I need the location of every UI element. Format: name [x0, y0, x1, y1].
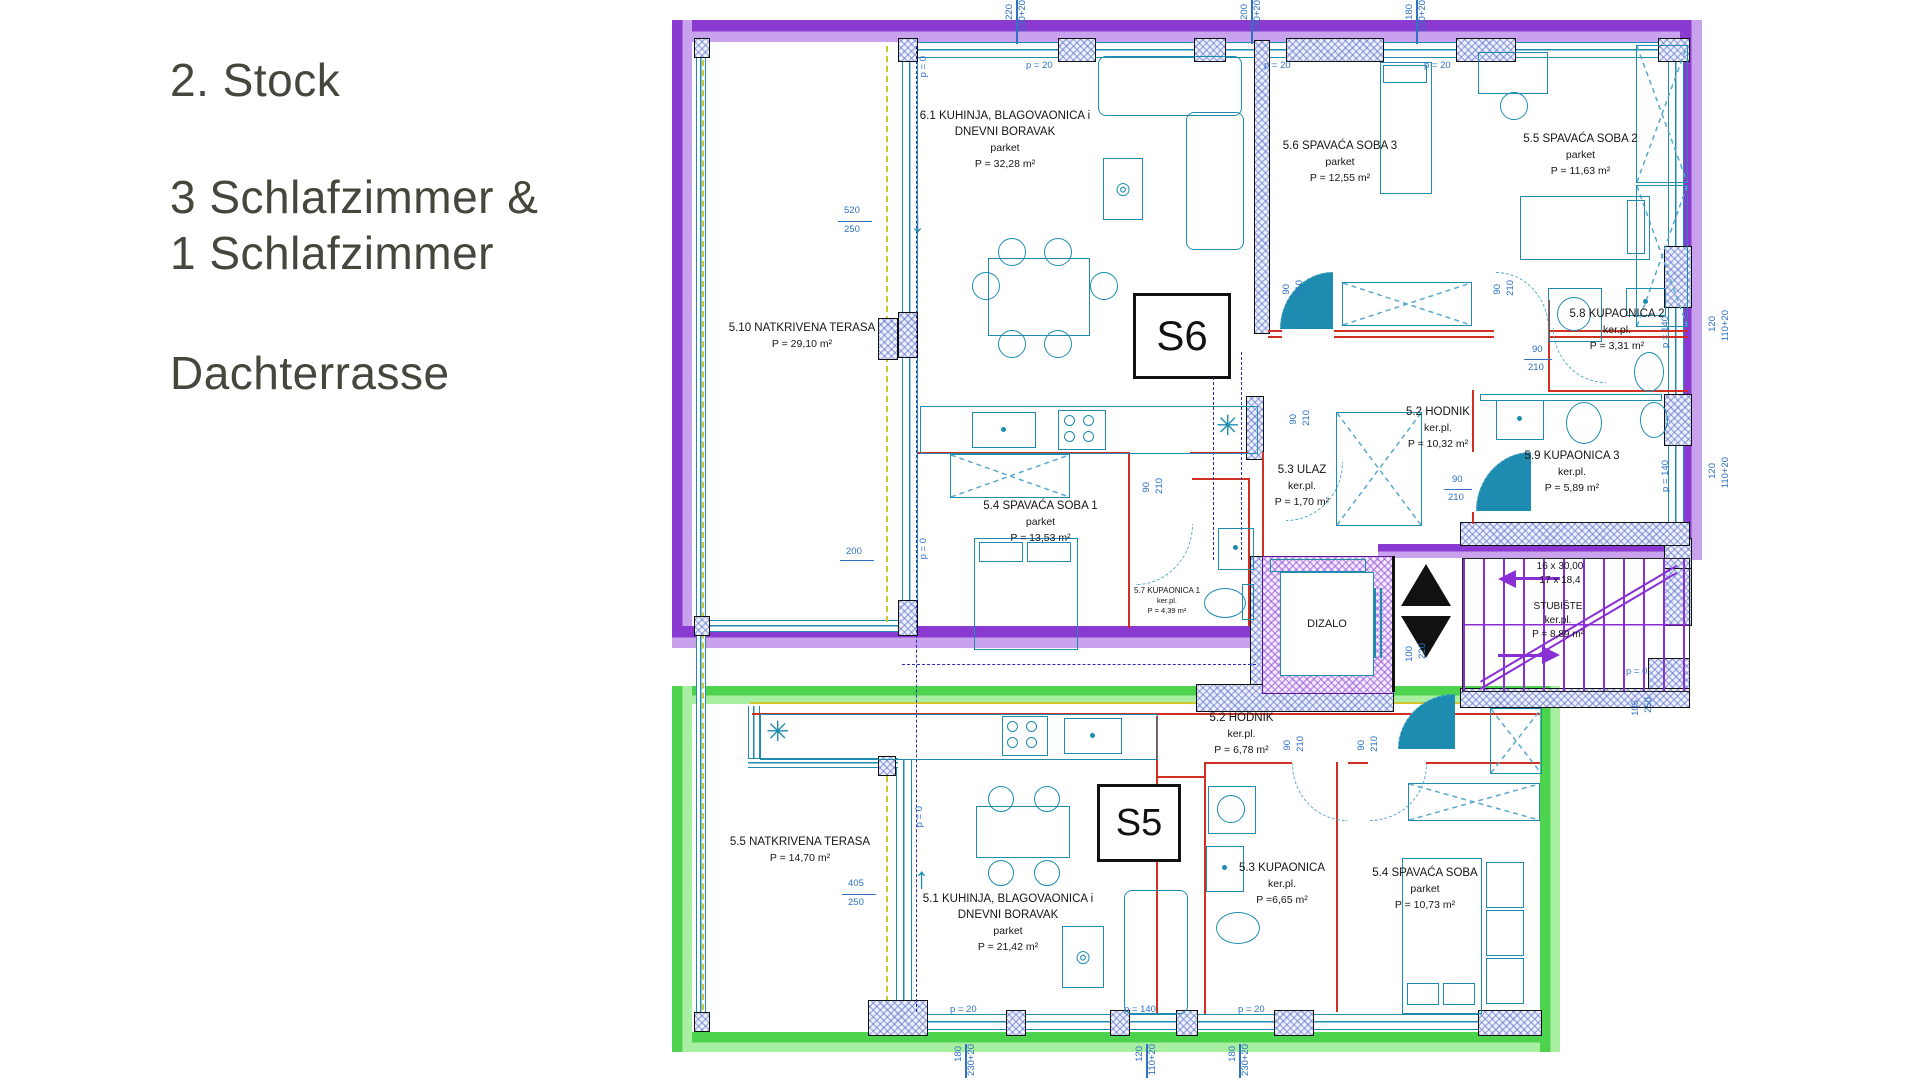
- dim-tick: [1146, 1044, 1148, 1078]
- lobby-wall: [1392, 556, 1395, 692]
- room-finish: ker.pl.: [1228, 876, 1336, 892]
- stove: [1002, 716, 1048, 756]
- caption-line-2: 1 Schlafzimmer: [170, 226, 494, 280]
- room-name: 5.10 NATKRIVENA TERASA: [722, 320, 882, 336]
- chair: [988, 860, 1014, 886]
- dim-label: p = 20: [1026, 60, 1053, 71]
- terrace-edge-bottom-s6: [698, 620, 902, 632]
- core-wall: [1460, 522, 1690, 546]
- unit-label-s5: S5: [1097, 784, 1181, 862]
- room-label-hall-s6: 5.2 HODNIK ker.pl. P = 10,32 m²: [1398, 404, 1478, 452]
- dim-label: 230+20: [1017, 0, 1028, 32]
- red-partition: [1348, 762, 1368, 764]
- dim-label: 90: [1492, 284, 1503, 295]
- elevator-car: DIZALO: [1280, 572, 1374, 676]
- chair: [1044, 238, 1072, 266]
- chair: [988, 786, 1014, 812]
- room-area: P = 10,32 m²: [1398, 436, 1478, 452]
- room-name: 5.2 HODNIK: [1398, 404, 1478, 420]
- floor-title: 2. Stock: [170, 53, 340, 107]
- room-finish: parket: [918, 923, 1098, 939]
- dim-label: 230+20: [1240, 1044, 1251, 1076]
- wall-segment: [898, 312, 918, 358]
- room-name: 5.5 SPAVAĆA SOBA 2: [1498, 131, 1663, 147]
- dim-line: [838, 221, 872, 222]
- room-name: 5.8 KUPAONICA 2: [1558, 306, 1676, 322]
- chair: [1044, 330, 1072, 358]
- wall-segment: [1274, 1010, 1314, 1036]
- dim-tick: [1239, 1044, 1241, 1078]
- dim-label: 90: [1356, 740, 1367, 751]
- bidet: [1640, 402, 1668, 438]
- room-name: 5.4 SPAVAĆA SOBA 1: [973, 498, 1108, 514]
- red-partition: [1268, 336, 1282, 338]
- dim-label: 90: [1288, 414, 1299, 425]
- room-finish: ker.pl.: [1260, 478, 1344, 494]
- dim-label: 210: [1154, 478, 1165, 494]
- washing-machine: [1208, 786, 1256, 834]
- direction-up-icon: [1401, 564, 1451, 606]
- dim-label: 120: [1707, 316, 1718, 332]
- room-finish: parket: [1366, 881, 1484, 897]
- dim-label: 90: [1141, 482, 1152, 493]
- window-band-west-s5: [896, 760, 912, 1016]
- wardrobe: [950, 454, 1070, 498]
- dim-label: 100: [1404, 646, 1415, 662]
- room-name: 5.9 KUPAONICA 3: [1516, 448, 1628, 464]
- room-label-bedroom-s5: 5.4 SPAVAĆA SOBA parket P = 10,73 m²: [1366, 865, 1484, 913]
- dim-tick: [1251, 0, 1253, 44]
- dim-label: 90: [1452, 474, 1463, 485]
- room-finish: ker.pl.: [1398, 420, 1478, 436]
- dim-label: 210: [1295, 736, 1306, 752]
- dim-line: [840, 560, 874, 561]
- wall-segment: [898, 600, 918, 636]
- dim-label: 120: [1707, 463, 1718, 479]
- red-partition: [1192, 478, 1248, 480]
- dim-label: p = 0: [1626, 666, 1647, 677]
- room-label-bedroom1: 5.4 SPAVAĆA SOBA 1 parket P = 13,53 m²: [973, 498, 1108, 546]
- elevator-door: [1380, 588, 1382, 658]
- dim-label: 210: [1505, 280, 1516, 296]
- interior-wall: [1254, 40, 1270, 334]
- s5-frame-left: [672, 686, 692, 1052]
- room-area: P =6,65 m²: [1228, 892, 1336, 908]
- dim-label: p = 140: [1124, 1004, 1156, 1015]
- room-area: P = 11,63 m²: [1498, 163, 1663, 179]
- stove: [1058, 410, 1106, 450]
- axis-line: [1213, 352, 1214, 560]
- room-area: P = 21,42 m²: [918, 939, 1098, 955]
- dim-label: 110+20: [1720, 457, 1731, 488]
- dim-label: 180: [953, 1046, 964, 1062]
- dim-label: 210: [1448, 492, 1464, 503]
- room-name: 5.6 SPAVAĆA SOBA 3: [1266, 138, 1414, 154]
- room-name: 5.5 NATKRIVENA TERASA: [720, 834, 880, 850]
- dining-table: [976, 806, 1070, 858]
- toilet: [1216, 912, 1260, 944]
- dining-table: [988, 258, 1090, 336]
- room-name: 6.1 KUHINJA, BLAGOVAONICA i: [880, 108, 1130, 124]
- room-name: 5.7 KUPAONICA 1: [1126, 586, 1208, 596]
- toilet: [1204, 588, 1246, 618]
- room-area: P = 3,31 m²: [1558, 338, 1676, 354]
- terrace-post: [694, 616, 710, 636]
- toilet: [1566, 402, 1602, 444]
- caption-line-3: Dachterrasse: [170, 346, 450, 400]
- s6-frame-top: [672, 20, 1702, 42]
- room-name: 5.3 KUPAONICA: [1228, 860, 1336, 876]
- room-area: P = 4,39 m²: [1126, 606, 1208, 616]
- caption-line-1: 3 Schlafzimmer &: [170, 170, 538, 224]
- stair-name: STUBIŠTE: [1502, 600, 1614, 614]
- room-finish: parket: [880, 140, 1130, 156]
- wall-segment: [1286, 38, 1384, 62]
- dim-label: 230+20: [1252, 0, 1263, 32]
- kitchen-sink: [972, 412, 1036, 448]
- room-area: P = 1,70 m²: [1260, 494, 1344, 510]
- kitchen-sink: [1064, 718, 1122, 754]
- red-partition: [1268, 330, 1282, 332]
- dim-label: 405: [848, 878, 864, 889]
- dim-label: p = 0: [918, 56, 929, 77]
- wall-segment: [898, 38, 918, 62]
- nightstand: [1486, 910, 1524, 956]
- dim-line: [1444, 489, 1472, 490]
- room-label-hall-s5: 5.2 HODNIK ker.pl. P = 6,78 m²: [1194, 710, 1289, 758]
- room-name: DNEVNI BORAVAK: [880, 124, 1130, 140]
- dim-label: p = 20: [1238, 1004, 1265, 1015]
- terrace-dashed-line: [702, 40, 704, 1030]
- dim-label: 105: [1630, 700, 1641, 716]
- room-name: 5.4 SPAVAĆA SOBA: [1366, 865, 1484, 881]
- dim-label: 90: [1281, 284, 1292, 295]
- bathroom-sink: [1218, 528, 1254, 570]
- room-label-bath2: 5.8 KUPAONICA 2 ker.pl. P = 3,31 m²: [1558, 306, 1676, 354]
- room-area: P = 12,55 m²: [1266, 170, 1414, 186]
- dim-label: 250: [844, 224, 860, 235]
- room-area: P = 6,78 m²: [1194, 742, 1289, 758]
- balcony-dashed-line: [902, 664, 1256, 665]
- room-label-terrace-s6: 5.10 NATKRIVENA TERASA P = 29,10 m²: [722, 320, 882, 352]
- chair: [1090, 272, 1118, 300]
- s6-frame-left: [672, 20, 692, 648]
- elevator-machinery: [1270, 559, 1366, 572]
- room-area: P = 32,28 m²: [880, 156, 1130, 172]
- dim-label: p = 140: [1660, 316, 1671, 348]
- dim-label: 180: [1227, 1046, 1238, 1062]
- dim-label: 230+20: [966, 1044, 977, 1076]
- room-finish: parket: [1498, 147, 1663, 163]
- room-finish: ker.pl.: [1558, 322, 1676, 338]
- room-area: P = 5,89 m²: [1516, 480, 1628, 496]
- stair-arrow-line: [1498, 654, 1542, 657]
- wardrobe: [1342, 282, 1472, 326]
- dim-label: 210: [1528, 362, 1544, 373]
- dim-tick: [1416, 0, 1418, 44]
- dim-label: p = 0: [918, 538, 929, 559]
- room-label-bath-s5: 5.3 KUPAONICA ker.pl. P =6,65 m²: [1228, 860, 1336, 908]
- door-swing: [1292, 764, 1347, 821]
- room-area: P = 13,53 m²: [973, 530, 1108, 546]
- dim-label: 90: [1532, 344, 1543, 355]
- sofa: [1124, 890, 1188, 1014]
- dim-label: 120: [1134, 1046, 1145, 1062]
- dim-label: 200: [846, 546, 862, 557]
- wardrobe: [1408, 783, 1540, 821]
- unit-label-s6: S6: [1133, 293, 1231, 379]
- elevator-door: [1374, 588, 1376, 658]
- wardrobe: [1490, 708, 1542, 774]
- dim-tick: [965, 1044, 967, 1078]
- sofa: [1186, 112, 1244, 250]
- wall-segment: [1478, 1010, 1542, 1036]
- dim-line: [842, 894, 876, 895]
- dim-label: p = 20: [950, 1004, 977, 1015]
- dim-label: 220: [1004, 4, 1015, 20]
- dim-tick: [1016, 0, 1018, 44]
- stair-arrow-icon: [1542, 646, 1560, 664]
- desk: [1478, 52, 1548, 94]
- red-partition: [1472, 512, 1474, 524]
- room-area: P = 10,73 m²: [1366, 897, 1484, 913]
- dim-label: p = 20: [1424, 60, 1451, 71]
- terrace-post: [694, 38, 710, 58]
- dim-label: 210: [1301, 410, 1312, 426]
- room-name: 5.1 KUHINJA, BLAGOVAONICA i: [918, 891, 1098, 907]
- chair: [972, 272, 1000, 300]
- arrow-up-icon: ↑: [914, 864, 929, 894]
- chair: [998, 238, 1026, 266]
- elevator-label: DIZALO: [1307, 618, 1347, 630]
- room-label-terrace-s5: 5.5 NATKRIVENA TERASA P = 14,70 m²: [720, 834, 880, 866]
- sofa: [1098, 56, 1242, 116]
- room-name: 5.2 HODNIK: [1194, 710, 1289, 726]
- room-label-bath1: 5.7 KUPAONICA 1 ker.pl. P = 4,39 m²: [1126, 586, 1208, 616]
- dim-label: 220: [1417, 643, 1428, 659]
- terrace-dashed-line: [886, 766, 888, 1012]
- chair: [1034, 786, 1060, 812]
- nightstand: [1486, 862, 1524, 908]
- room-label-kitchen-s5: 5.1 KUHINJA, BLAGOVAONICA i DNEVNI BORAV…: [918, 891, 1098, 955]
- room-label-bedroom3: 5.6 SPAVAĆA SOBA 3 parket P = 12,55 m²: [1266, 138, 1414, 186]
- room-label-bath3: 5.9 KUPAONICA 3 ker.pl. P = 5,89 m²: [1516, 448, 1628, 496]
- stair-room-label: STUBIŠTE ker.pl. P = 8,89 m²: [1502, 600, 1614, 642]
- room-finish: ker.pl.: [1126, 596, 1208, 606]
- room-finish: parket: [1266, 154, 1414, 170]
- room-label-entry: 5.3 ULAZ ker.pl. P = 1,70 m²: [1260, 462, 1344, 510]
- nightstand: [1486, 958, 1524, 1004]
- dim-label: 180: [1404, 4, 1415, 20]
- dim-label: 250: [848, 897, 864, 908]
- red-partition: [1334, 330, 1494, 332]
- room-name: 5.3 ULAZ: [1260, 462, 1344, 478]
- stair-area: P = 8,89 m²: [1502, 628, 1614, 642]
- room-finish: ker.pl.: [1194, 726, 1289, 742]
- s5-frame-right: [1540, 686, 1560, 1052]
- dim-label: 210: [1294, 280, 1305, 296]
- room-finish: parket: [973, 514, 1108, 530]
- room-label-kitchen-s6: 6.1 KUHINJA, BLAGOVAONICA i DNEVNI BORAV…: [880, 108, 1130, 172]
- room-finish: ker.pl.: [1516, 464, 1628, 480]
- toilet-tank: [1242, 584, 1254, 620]
- red-partition: [1156, 776, 1206, 778]
- dim-line: [1524, 359, 1552, 360]
- arrow-down-icon: ↓: [910, 208, 925, 238]
- dim-label: 200: [1239, 4, 1250, 20]
- dim-label: 210: [1369, 736, 1380, 752]
- red-partition: [1334, 336, 1494, 338]
- bed: [974, 538, 1078, 650]
- terrace-post: [694, 1012, 710, 1032]
- room-label-bedroom2: 5.5 SPAVAĆA SOBA 2 parket P = 11,63 m²: [1498, 131, 1663, 179]
- door-swing: [1136, 524, 1193, 585]
- core-frame-top: [1378, 544, 1688, 558]
- dim-label: 250: [1643, 697, 1654, 713]
- stair-finish: ker.pl.: [1502, 614, 1614, 628]
- dim-label: 110+20: [1720, 310, 1731, 341]
- dim-label: p = 140: [1660, 460, 1671, 492]
- vent-icon: ✳: [766, 718, 789, 746]
- red-partition: [1204, 762, 1292, 764]
- vent-icon: ✳: [1216, 412, 1239, 440]
- window-band-south-s5: [902, 1014, 1542, 1030]
- toilet: [1634, 352, 1664, 392]
- wall-segment: [1006, 1010, 1026, 1036]
- room-area: P = 14,70 m²: [720, 850, 880, 866]
- chair: [998, 330, 1026, 358]
- wall-segment: [1058, 38, 1096, 62]
- dim-label: 110+20: [1147, 1044, 1158, 1075]
- room-name: DNEVNI BORAVAK: [918, 907, 1098, 923]
- terrace-edge-left: [696, 40, 706, 1028]
- dim-label: p = 20: [1264, 60, 1291, 71]
- wall-segment: [868, 1000, 928, 1036]
- chair: [1034, 860, 1060, 886]
- wall-segment: [1664, 394, 1692, 446]
- stair-steps: 16 x 30,00: [1504, 560, 1616, 574]
- bed: [1520, 196, 1650, 260]
- red-partition: [1548, 390, 1688, 392]
- door-swing: [1496, 272, 1549, 329]
- room-area: P = 29,10 m²: [722, 336, 882, 352]
- door-swing: [1280, 272, 1333, 329]
- chair: [1500, 92, 1528, 120]
- stair-rise: 17 x 18,4: [1504, 574, 1616, 588]
- dim-label: 90: [1282, 740, 1293, 751]
- dim-label: p = 0: [914, 806, 925, 827]
- dim-label: 230+20: [1417, 0, 1428, 32]
- dim-label: 520: [844, 205, 860, 216]
- bathroom-sink: [1496, 400, 1544, 440]
- stair-count-label: 16 x 30,00 17 x 18,4: [1504, 560, 1616, 588]
